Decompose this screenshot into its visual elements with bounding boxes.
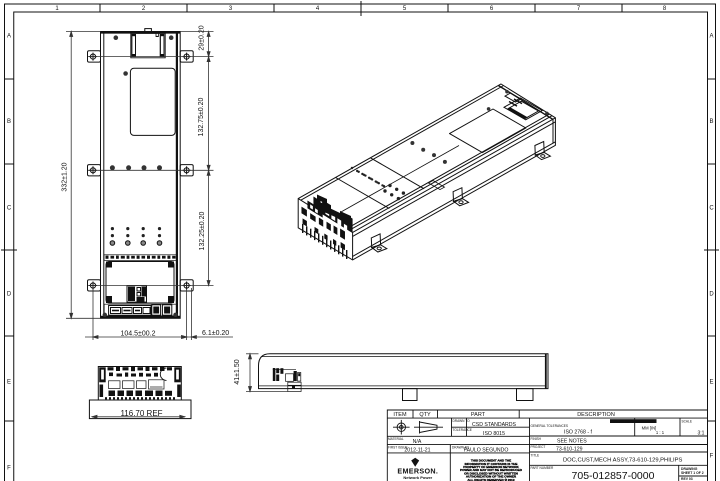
svg-text:A: A xyxy=(709,34,713,40)
svg-text:1 : 1: 1 : 1 xyxy=(656,430,665,435)
svg-text:DRAWN TO: DRAWN TO xyxy=(453,419,471,423)
svg-text:F: F xyxy=(7,466,11,472)
svg-text:F: F xyxy=(710,454,714,460)
svg-text:73-610-129: 73-610-129 xyxy=(556,447,583,453)
svg-text:132.25±0.20: 132.25±0.20 xyxy=(199,211,206,250)
svg-text:CSD STANDARDS: CSD STANDARDS xyxy=(472,422,517,428)
svg-text:104.5±00.2: 104.5±00.2 xyxy=(121,331,156,338)
svg-text:GENERAL TOLERANCES: GENERAL TOLERANCES xyxy=(531,424,569,428)
svg-text:2012-11-21: 2012-11-21 xyxy=(404,447,430,453)
svg-text:ISO 2768 - f: ISO 2768 - f xyxy=(564,430,593,436)
svg-text:PAULO SEGUNDO: PAULO SEGUNDO xyxy=(464,447,509,453)
svg-text:ITEM: ITEM xyxy=(393,412,407,418)
svg-text:TITLE: TITLE xyxy=(531,454,540,458)
svg-text:A: A xyxy=(7,34,11,40)
svg-text:SCALE: SCALE xyxy=(682,420,692,424)
svg-text:D: D xyxy=(709,292,714,298)
svg-text:FINISH: FINISH xyxy=(531,437,542,441)
svg-text:QTY: QTY xyxy=(419,412,431,418)
svg-text:41±1.50: 41±1.50 xyxy=(234,359,241,384)
svg-text:MM [IN]: MM [IN] xyxy=(642,426,657,431)
svg-text:TOLERANCE: TOLERANCE xyxy=(453,428,472,432)
svg-text:UNITS: UNITS xyxy=(636,420,646,424)
svg-text:E: E xyxy=(7,380,11,386)
svg-text:132.75±0.20: 132.75±0.20 xyxy=(198,97,205,136)
svg-text:SEE NOTES: SEE NOTES xyxy=(557,439,587,445)
svg-text:PROJECT: PROJECT xyxy=(531,445,546,449)
svg-text:B: B xyxy=(709,119,713,125)
svg-text:B: B xyxy=(7,119,11,125)
svg-text:ISO 8015: ISO 8015 xyxy=(483,431,505,437)
svg-text:3:1: 3:1 xyxy=(698,431,705,437)
svg-text:6.1±0.20: 6.1±0.20 xyxy=(202,330,229,337)
svg-text:PART: PART xyxy=(471,412,486,418)
svg-text:D: D xyxy=(7,292,12,298)
svg-text:29±0.20: 29±0.20 xyxy=(199,25,206,50)
svg-text:116.70 REF: 116.70 REF xyxy=(120,409,162,418)
svg-text:332±1.20: 332±1.20 xyxy=(62,162,69,191)
svg-text:REV 03: REV 03 xyxy=(681,477,693,481)
svg-text:UNLESS STATED OTHERWISE: UNLESS STATED OTHERWISE xyxy=(613,419,653,423)
svg-text:MATERIAL: MATERIAL xyxy=(388,437,404,441)
svg-text:DOC,CUST,MECH ASSY,73-610-129,: DOC,CUST,MECH ASSY,73-610-129,PHILIPS xyxy=(563,458,683,464)
svg-text:N/A: N/A xyxy=(413,439,422,445)
svg-text:PART NUMBER: PART NUMBER xyxy=(531,466,555,470)
svg-text:C: C xyxy=(7,206,12,212)
svg-text:SHEET 1 OF 2: SHEET 1 OF 2 xyxy=(681,471,704,475)
svg-text:C: C xyxy=(709,206,714,212)
svg-text:E: E xyxy=(709,380,713,386)
svg-text:705-012857-0000: 705-012857-0000 xyxy=(572,470,655,481)
svg-text:DESCRIPTION: DESCRIPTION xyxy=(577,412,615,418)
